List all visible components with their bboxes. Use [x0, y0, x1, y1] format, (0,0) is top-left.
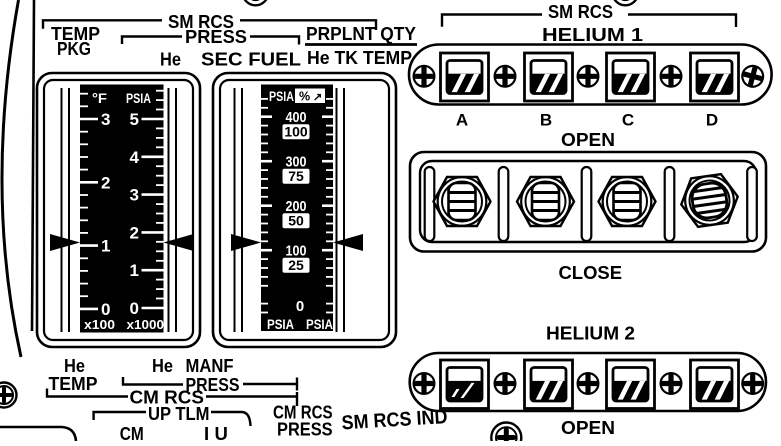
svg-text:C: C	[622, 111, 634, 130]
svg-text:PSIA: PSIA	[306, 317, 333, 332]
svg-text:PRESS: PRESS	[185, 26, 247, 47]
svg-text:0: 0	[101, 300, 110, 319]
svg-text:1: 1	[130, 261, 139, 280]
svg-text:3: 3	[101, 110, 110, 129]
svg-text:HELIUM 1: HELIUM 1	[542, 24, 643, 45]
svg-text:D: D	[706, 111, 718, 130]
svg-text:He: He	[152, 355, 173, 376]
svg-text:0: 0	[130, 299, 139, 318]
svg-text:SM RCS: SM RCS	[548, 1, 613, 22]
svg-text:PSIA: PSIA	[267, 317, 294, 332]
svg-text:100: 100	[284, 124, 308, 140]
svg-text:He: He	[160, 49, 181, 70]
svg-text:5: 5	[130, 110, 139, 129]
svg-text:1: 1	[101, 237, 110, 256]
svg-text:2: 2	[130, 223, 139, 242]
svg-text:CLOSE: CLOSE	[559, 262, 623, 283]
svg-text:2: 2	[101, 173, 110, 192]
svg-text:I: I	[204, 423, 209, 441]
svg-text:B: B	[540, 111, 552, 130]
svg-text:SEC FUEL: SEC FUEL	[201, 49, 301, 70]
svg-text:He TK TEMP: He TK TEMP	[307, 47, 412, 68]
svg-text:%: %	[299, 90, 310, 104]
svg-text:50: 50	[288, 213, 304, 229]
svg-text:UP TLM: UP TLM	[148, 403, 210, 424]
svg-text:3: 3	[130, 186, 139, 205]
svg-text:PKG: PKG	[57, 38, 91, 59]
svg-text:PRPLNT QTY: PRPLNT QTY	[306, 23, 417, 44]
svg-text:MANF: MANF	[186, 355, 234, 376]
svg-text:↗: ↗	[313, 92, 322, 104]
svg-text:SM RCS IND: SM RCS IND	[341, 406, 448, 434]
svg-text:PRESS: PRESS	[186, 374, 240, 395]
svg-text:x1000: x1000	[127, 318, 165, 332]
svg-text:TEMP: TEMP	[49, 373, 98, 394]
svg-text:25: 25	[288, 257, 304, 273]
svg-text:OPEN: OPEN	[561, 417, 615, 438]
svg-text:0: 0	[296, 298, 304, 315]
svg-text:PSIA: PSIA	[269, 89, 294, 104]
svg-text:x100: x100	[84, 318, 115, 332]
svg-text:CM: CM	[120, 423, 144, 441]
svg-text:HELIUM 2: HELIUM 2	[546, 323, 635, 344]
svg-text:A: A	[456, 111, 468, 130]
svg-text:°F: °F	[92, 91, 107, 106]
svg-text:75: 75	[288, 168, 304, 184]
svg-text:U: U	[215, 423, 228, 441]
svg-text:OPEN: OPEN	[561, 129, 615, 150]
svg-text:4: 4	[130, 148, 140, 167]
svg-text:PSIA: PSIA	[126, 91, 151, 106]
svg-text:PRESS: PRESS	[277, 419, 333, 440]
